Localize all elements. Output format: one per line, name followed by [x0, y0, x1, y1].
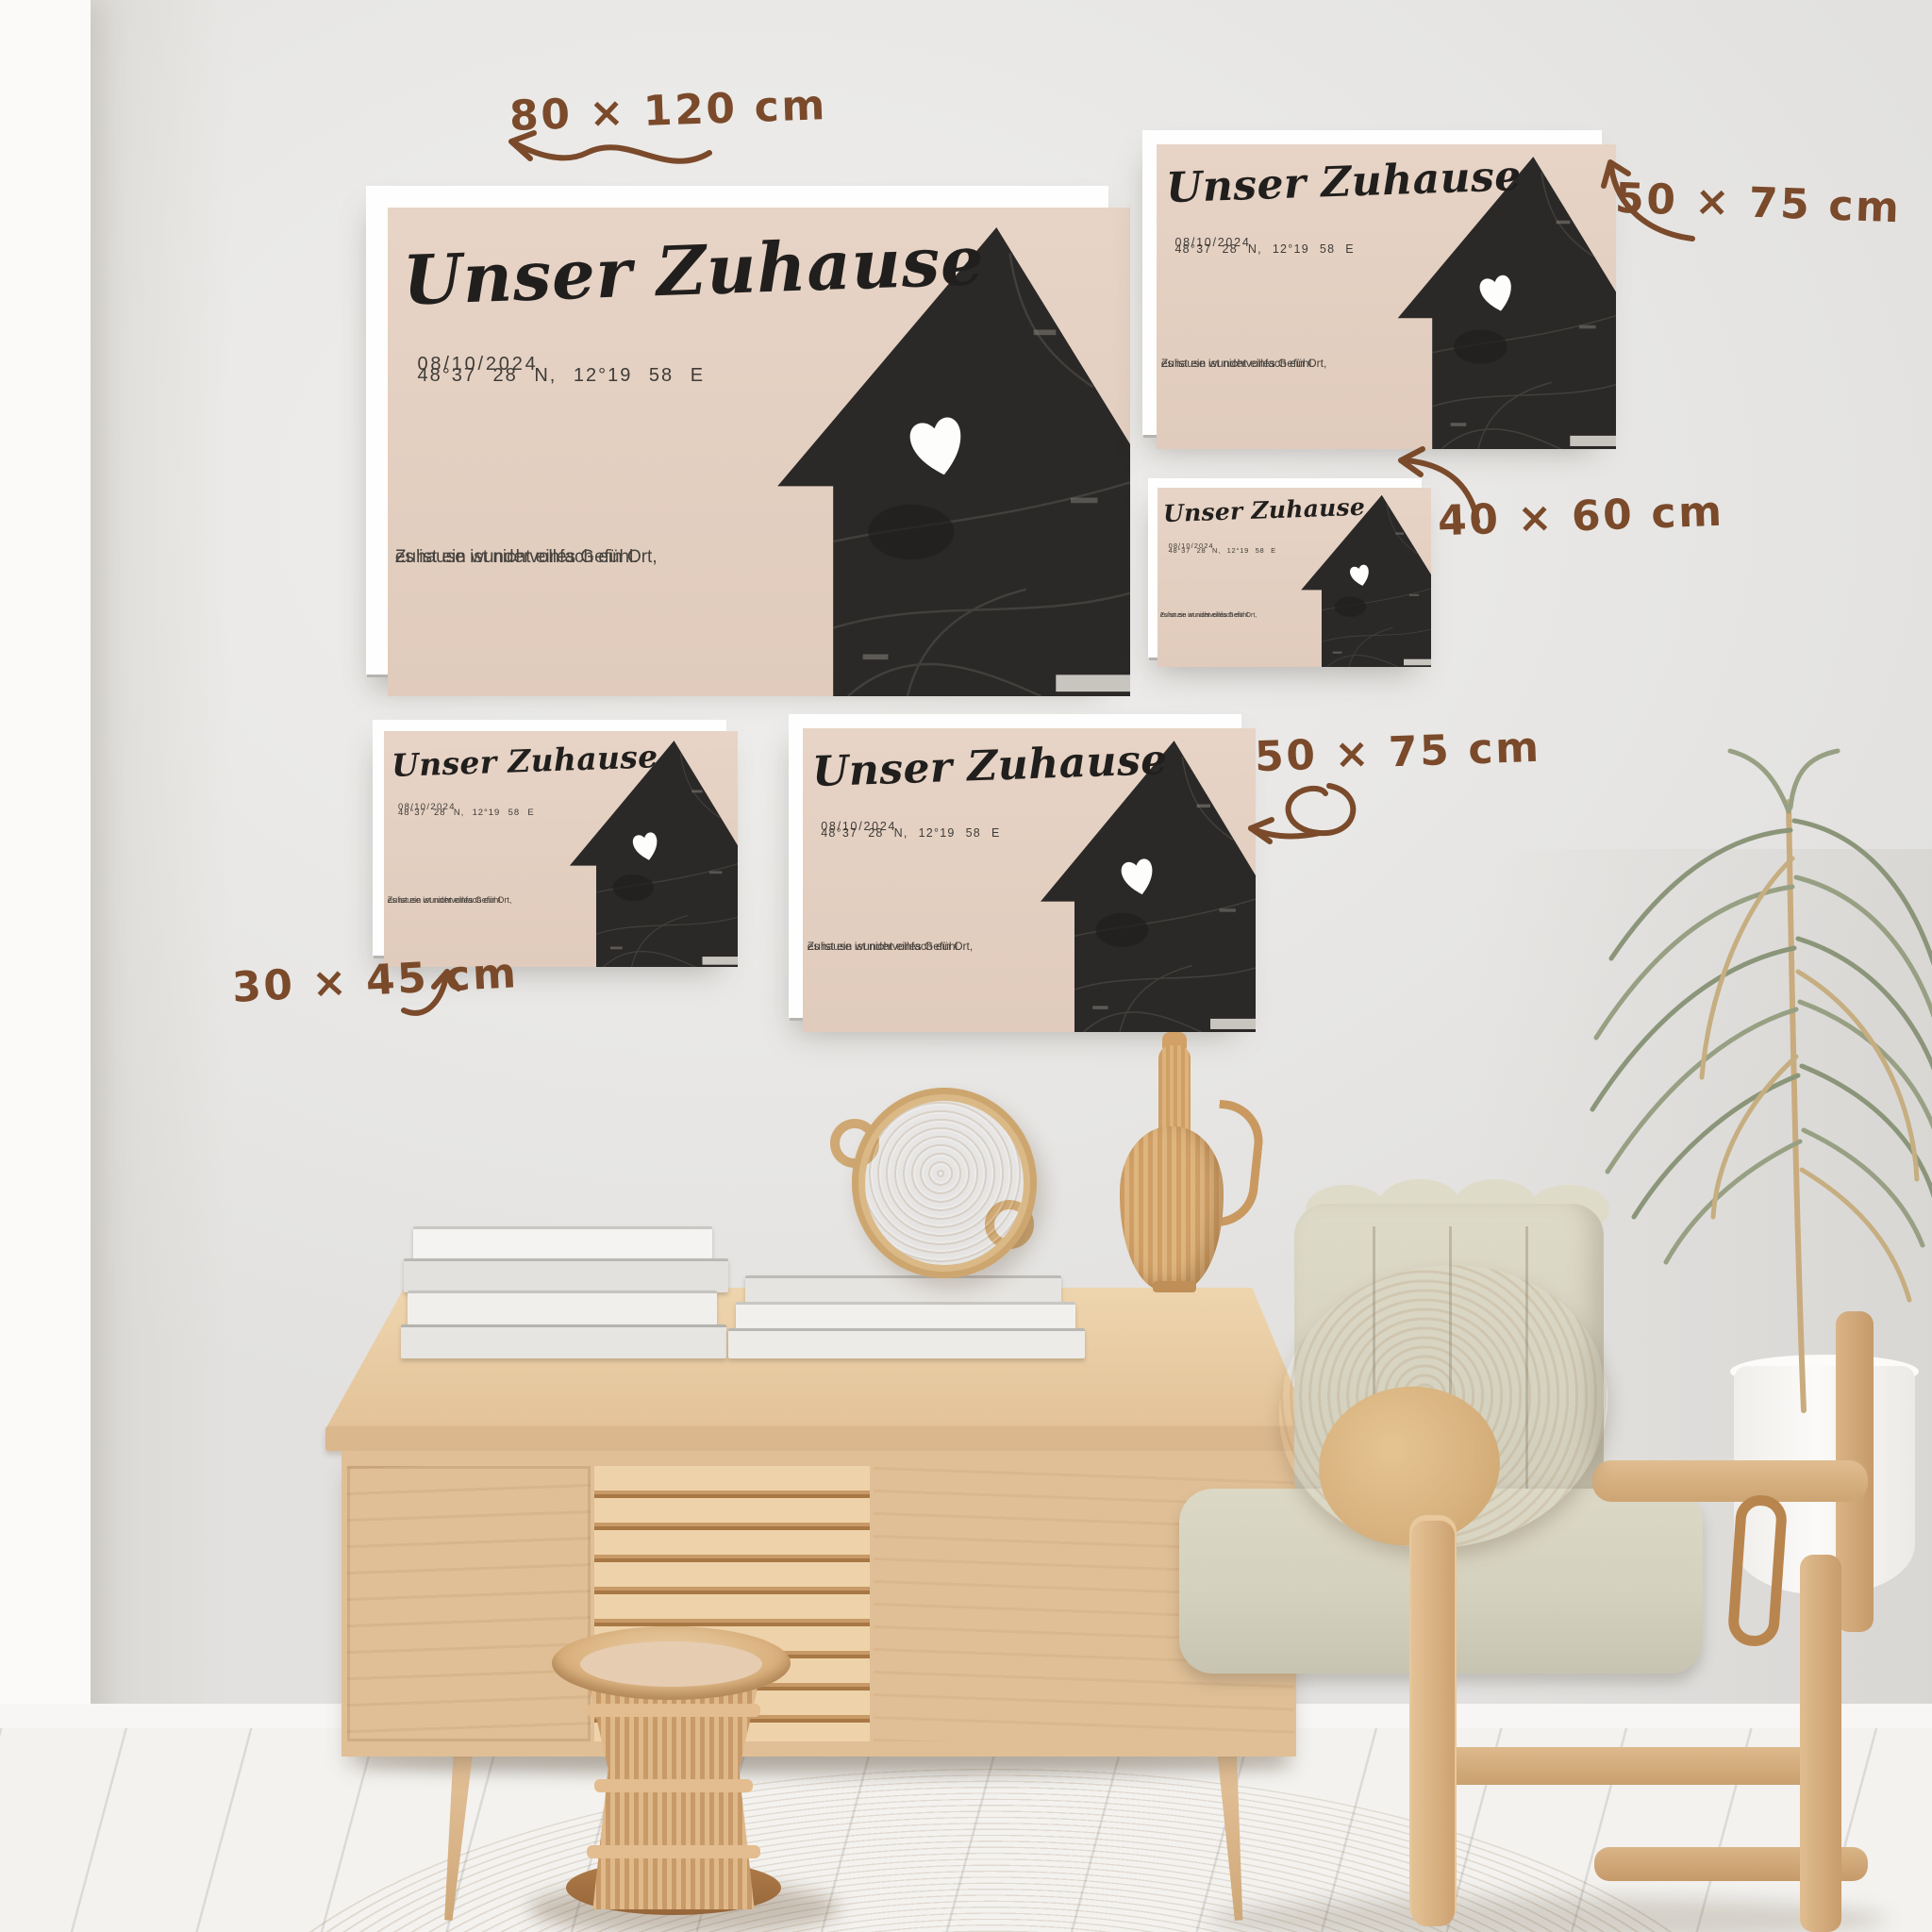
chair-frame: [1434, 1747, 1823, 1785]
quote-line-2: es ist ein wundervolles Gefühl.: [395, 544, 639, 572]
chair-leg: [1411, 1521, 1455, 1926]
poster-80x120: Unser Zuhause 08/10/2024 48°37 28 N, 12°…: [366, 186, 1108, 675]
sideboard-door: [347, 1466, 591, 1741]
quote-line-2: es ist ein wundervolles Gefühl.: [388, 894, 503, 908]
quote-line-2: es ist ein wundervolles Gefühl.: [1160, 611, 1250, 622]
quote-line-2: es ist ein wundervolles Gefühl.: [808, 938, 961, 955]
poster-art: Unser Zuhause 08/10/2024 48°37 28 N, 12°…: [803, 728, 1256, 1032]
leather-strap: [1726, 1493, 1788, 1647]
poster-art: Unser Zuhause 08/10/2024 48°37 28 N, 12°…: [388, 208, 1130, 696]
wicker-vase: [1120, 1126, 1224, 1291]
poster-title: Unser Zuhause: [1162, 493, 1333, 526]
size-label-50x75-top: 50 × 75 cm: [1614, 175, 1902, 233]
poster-art: Unser Zuhause 08/10/2024 48°37 28 N, 12°…: [384, 731, 738, 967]
book: [408, 1291, 717, 1326]
book: [728, 1328, 1085, 1358]
poster-title: Unser Zuhause: [811, 739, 1093, 796]
poster-50x75-top: Unser Zuhause 08/10/2024 48°37 28 N, 12°…: [1142, 130, 1602, 435]
stool-band: [594, 1779, 753, 1792]
poster-art: Unser Zuhause 08/10/2024 48°37 28 N, 12°…: [1157, 144, 1616, 449]
wall-shadow: [91, 0, 232, 1792]
poster-title: Unser Zuhause: [1165, 155, 1452, 213]
poster-coordinates: 48°37 28 N, 12°19 58 E: [417, 365, 705, 387]
poster-title: Unser Zuhause: [401, 224, 864, 320]
book: [404, 1258, 728, 1292]
stool-band: [587, 1845, 760, 1858]
poster-30x45: Unser Zuhause 08/10/2024 48°37 28 N, 12°…: [373, 720, 726, 956]
book: [413, 1226, 712, 1260]
poster-coordinates: 48°37 28 N, 12°19 58 E: [1169, 546, 1276, 555]
wicker-vase: [1153, 1281, 1196, 1292]
size-label-30x45: 30 × 45 cm: [231, 949, 520, 1012]
woven-wall-tray: [852, 1088, 1037, 1278]
stool-band: [587, 1704, 760, 1717]
room-photo: Unser Zuhause 08/10/2024 48°37 28 N, 12°…: [0, 0, 1932, 1932]
book: [736, 1302, 1075, 1330]
chair-armrest: [1592, 1460, 1868, 1502]
poster-title: Unser Zuhause: [391, 739, 611, 783]
left-wall-panel: [0, 0, 91, 1792]
wicker-vase: [1158, 1045, 1191, 1140]
poster-coordinates: 48°37 28 N, 12°19 58 E: [821, 826, 1000, 840]
size-label-80x120: 80 × 120 cm: [508, 81, 827, 141]
book: [401, 1324, 726, 1358]
poster-coordinates: 48°37 28 N, 12°19 58 E: [1174, 242, 1354, 256]
chair-leg: [1800, 1555, 1841, 1932]
poster-coordinates: 48°37 28 N, 12°19 58 E: [398, 808, 535, 818]
quote-line-2: es ist ein wundervolles Gefühl.: [1161, 355, 1315, 372]
poster-art: Unser Zuhause 08/10/2024 48°37 28 N, 12°…: [1158, 488, 1431, 667]
poster-40x60: Unser Zuhause 08/10/2024 48°37 28 N, 12°…: [1148, 478, 1422, 658]
poster-50x75-center: Unser Zuhause 08/10/2024 48°37 28 N, 12°…: [789, 714, 1241, 1018]
book: [745, 1275, 1061, 1304]
size-label-40x60: 40 × 60 cm: [1437, 488, 1724, 546]
sideboard-edge: [325, 1426, 1311, 1451]
stool-seat: [580, 1641, 762, 1687]
